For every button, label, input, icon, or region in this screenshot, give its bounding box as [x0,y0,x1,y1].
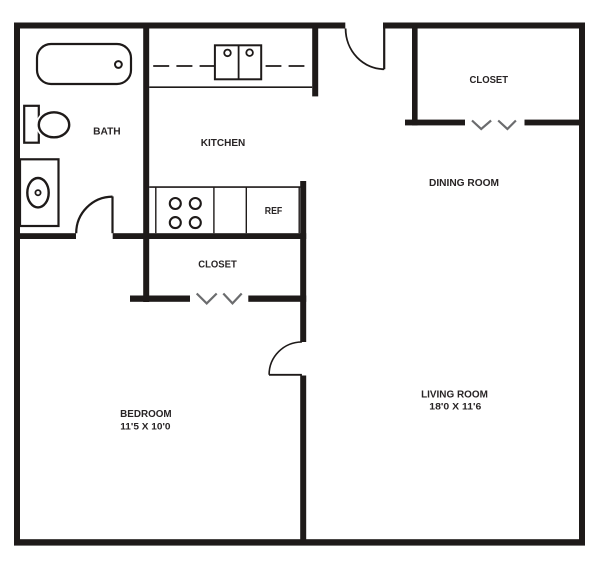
svg-text:BEDROOM: BEDROOM [120,408,172,420]
svg-text:KITCHEN: KITCHEN [201,137,246,149]
svg-text:11'5 X 10'0: 11'5 X 10'0 [120,422,170,433]
svg-text:CLOSET: CLOSET [470,74,509,86]
svg-text:BATH: BATH [93,126,121,138]
svg-text:REF: REF [265,205,283,217]
svg-text:18'0 X 11'6: 18'0 X 11'6 [429,402,481,413]
svg-text:LIVING ROOM: LIVING ROOM [421,389,488,401]
svg-text:DINING ROOM: DINING ROOM [429,177,499,189]
svg-text:CLOSET: CLOSET [198,258,237,270]
